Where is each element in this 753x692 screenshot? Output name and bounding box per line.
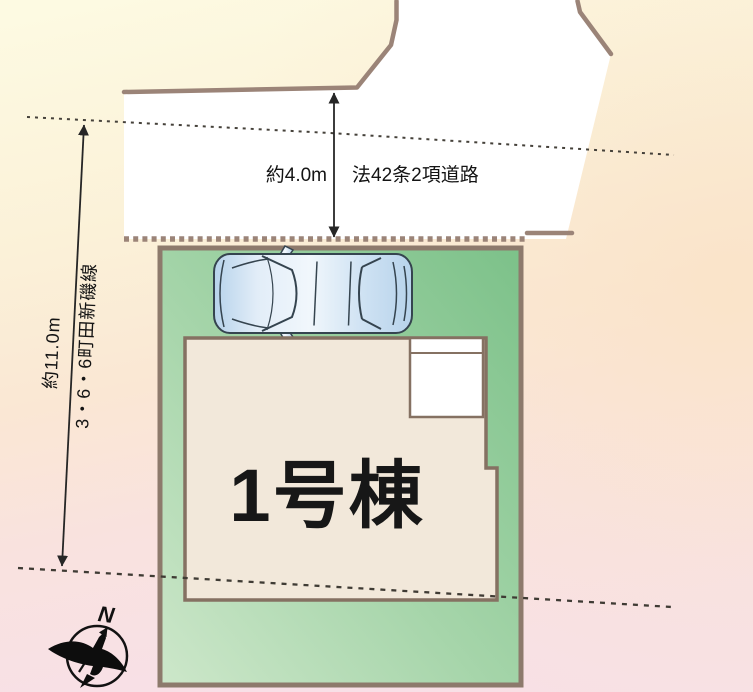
site-plan: 1号棟 約11.0m 3・6・6町田新磯線 約4.0m 法42条2項道路 N — [0, 0, 753, 692]
car-body — [214, 254, 412, 333]
road-width-label: 約4.0m — [266, 164, 327, 186]
car-top-view — [214, 246, 412, 341]
frontage-width-label: 約11.0m — [40, 316, 63, 390]
building-label: 1号棟 — [229, 454, 424, 537]
building-porch — [410, 338, 483, 417]
road-type-label: 法42条2項道路 — [352, 164, 479, 186]
site-plan-svg: 1号棟 約11.0m 3・6・6町田新磯線 約4.0m 法42条2項道路 N — [0, 0, 753, 692]
